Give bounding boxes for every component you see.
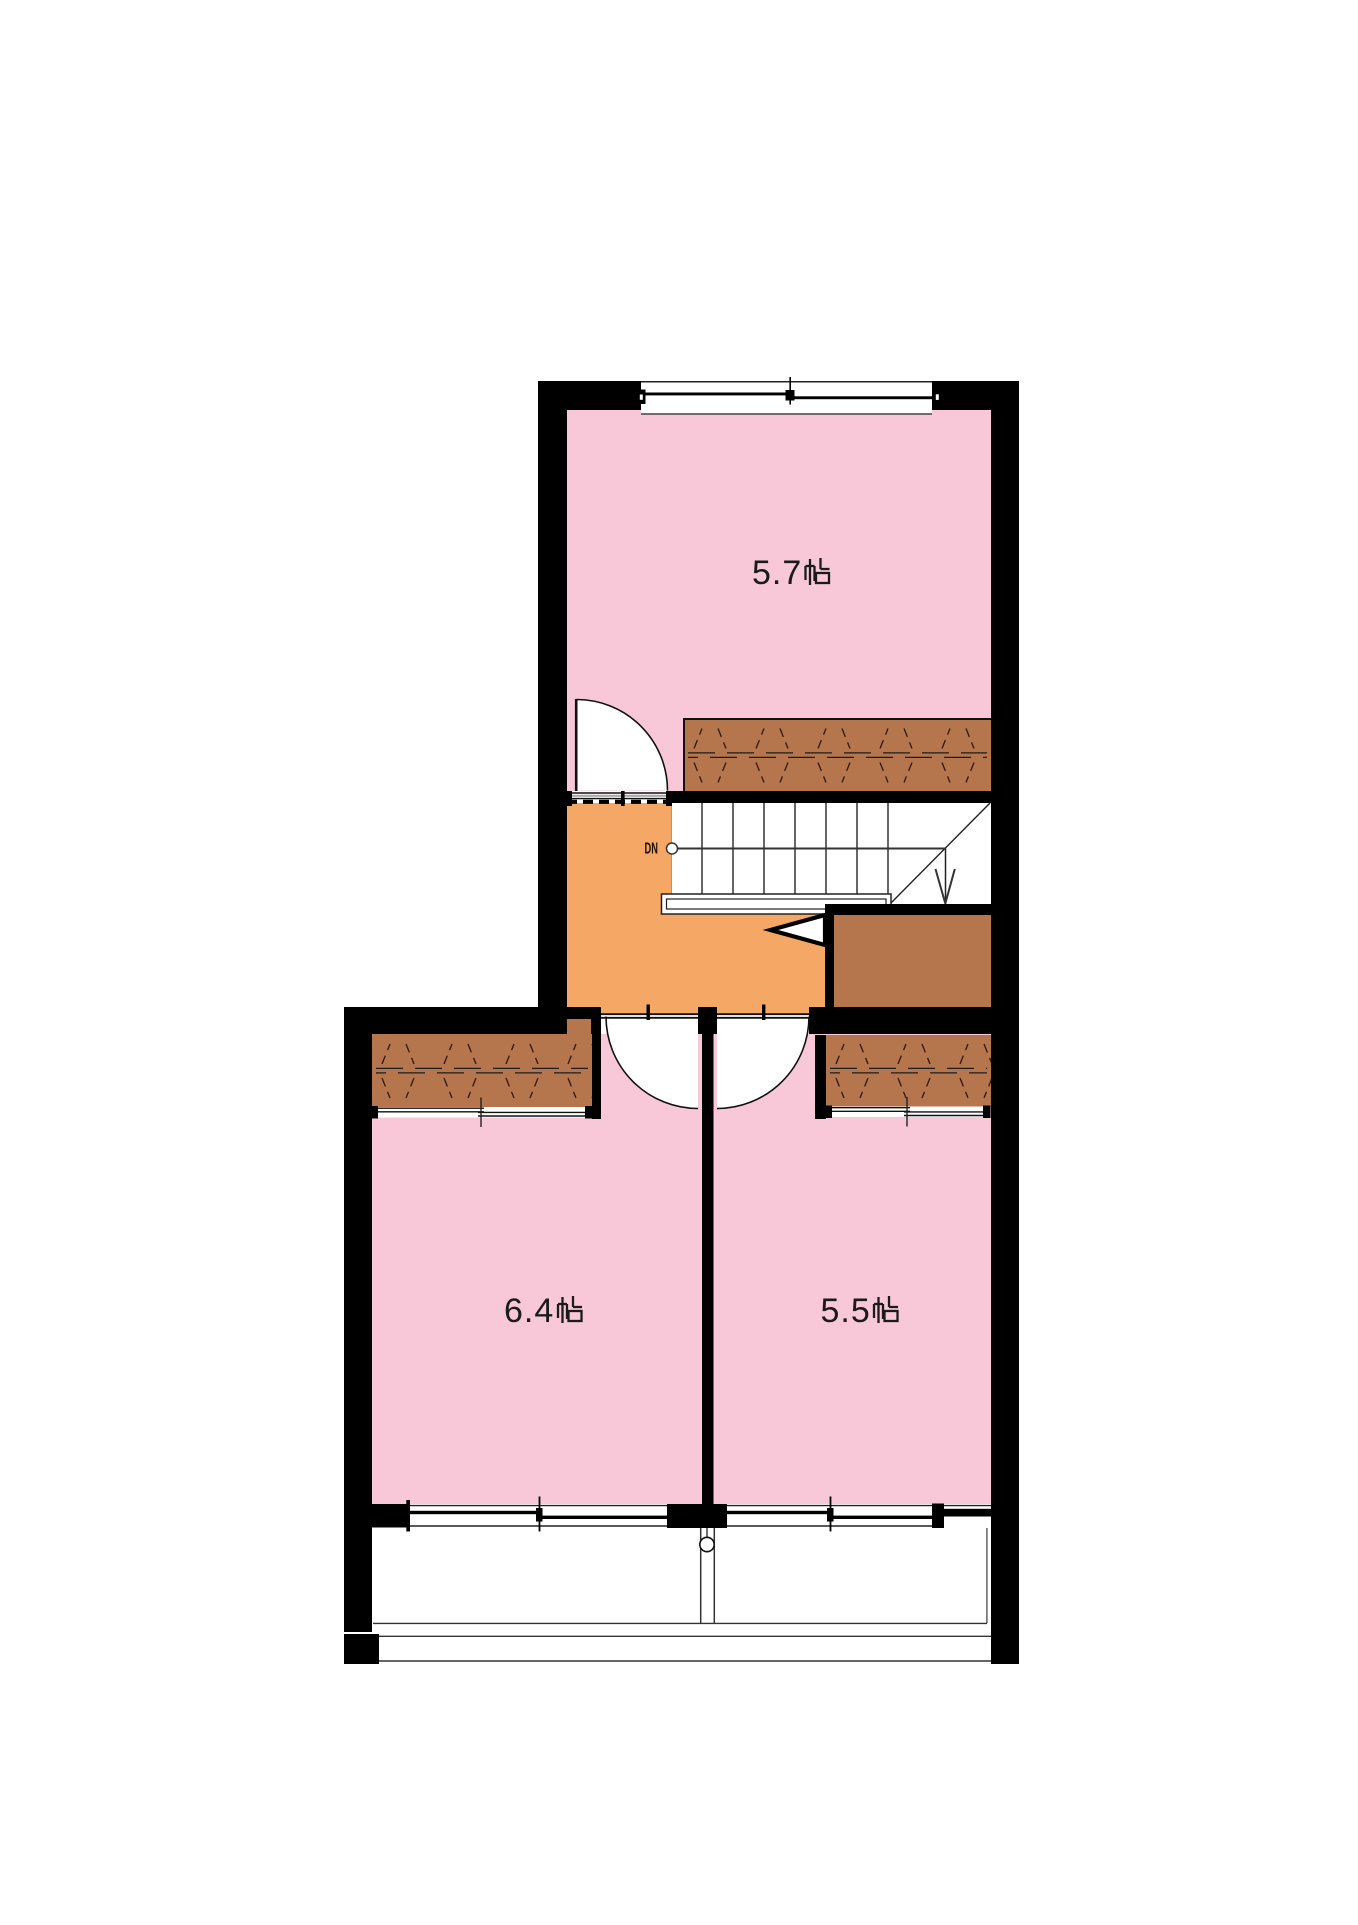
svg-text:5.7: 5.7 [752, 554, 802, 592]
svg-text:5.5: 5.5 [821, 1292, 871, 1330]
svg-text:6.4: 6.4 [504, 1292, 554, 1330]
svg-text:DN: DN [645, 839, 658, 857]
